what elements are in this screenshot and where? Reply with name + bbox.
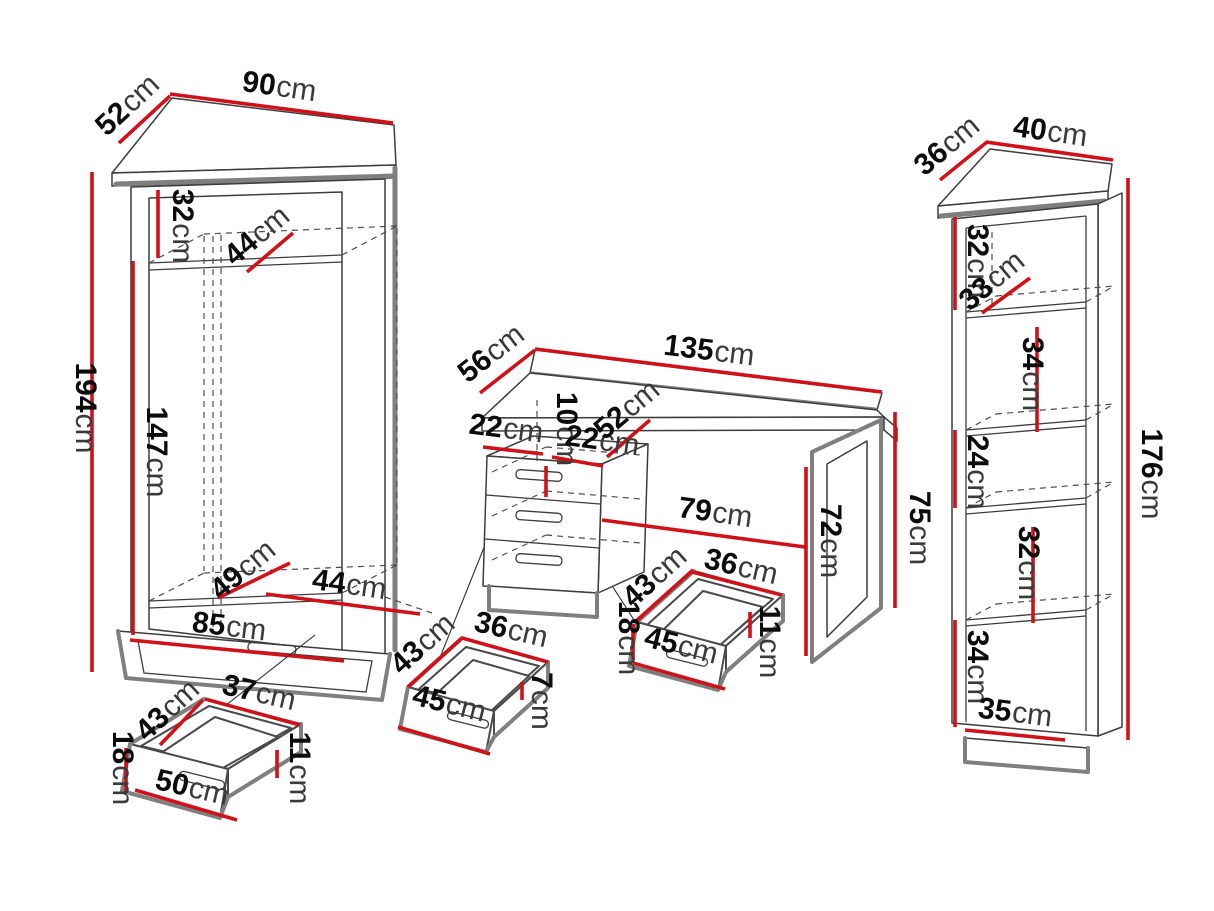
bookshelf: 36cm 40cm 32cm 33cm 34cm 24cm 32cm 34cm … bbox=[908, 109, 1168, 772]
dim-label-ddrawer1-side-height: 7cm bbox=[525, 672, 558, 730]
dim-label-ddrawer2-front-height: 18cm bbox=[612, 601, 645, 675]
dim-label-desk-height: 75cm bbox=[903, 491, 936, 565]
wardrobe: 52cm 90cm 32cm 44cm 194cm 147cm 49cm 44c… bbox=[69, 65, 432, 700]
wardrobe-drawer: 43cm 37cm 18cm 50cm 11cm bbox=[106, 668, 316, 820]
dim-label-wardrobe-inner-height: 147cm bbox=[140, 406, 173, 497]
cabinet-front-face bbox=[483, 456, 602, 593]
furniture-dimension-diagram: 52cm 90cm 32cm 44cm 194cm 147cm 49cm 44c… bbox=[0, 0, 1214, 911]
dim-label-desk-depth: 56cm bbox=[452, 318, 531, 390]
dim-label-shelf-section2: 34cm bbox=[1016, 337, 1049, 411]
dim-label-shelf-section4: 32cm bbox=[1012, 526, 1045, 600]
dim-label-wdrawer-side-height: 11cm bbox=[283, 732, 316, 805]
dim-label-shelf-height: 176cm bbox=[1135, 428, 1168, 519]
dim-label-shelf-section3: 24cm bbox=[961, 435, 994, 509]
dim-label-wdrawer-front-height: 18cm bbox=[106, 731, 139, 805]
dim-label-wardrobe-width: 90cm bbox=[240, 65, 318, 108]
desk-top-drawer: 43cm 36cm 45cm 7cm bbox=[384, 605, 558, 754]
shelf-side-face bbox=[1098, 193, 1122, 736]
dim-label-wardrobe-top-section: 32cm bbox=[166, 189, 199, 263]
dim-label-desk-clear-height: 72cm bbox=[814, 504, 847, 578]
diagram-canvas: 52cm 90cm 32cm 44cm 194cm 147cm 49cm 44c… bbox=[0, 0, 1214, 911]
dim-label-desk-clear-width: 79cm bbox=[676, 491, 754, 534]
dim-label-wardrobe-height: 194cm bbox=[69, 362, 102, 453]
dim-label-ddrawer2-side-height: 11cm bbox=[753, 606, 786, 679]
